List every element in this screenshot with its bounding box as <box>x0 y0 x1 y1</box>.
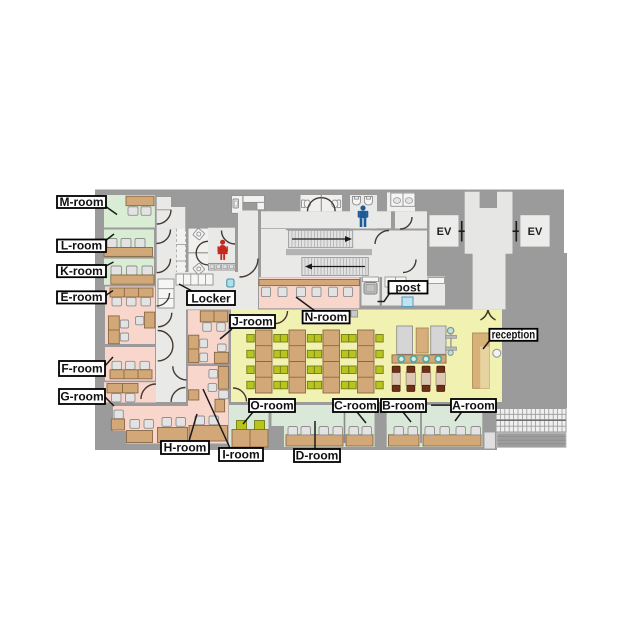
svg-text:A-room: A-room <box>452 399 495 413</box>
svg-text:J-room: J-room <box>232 315 273 329</box>
svg-text:M-room: M-room <box>60 195 104 209</box>
svg-text:B-room: B-room <box>382 399 425 413</box>
svg-text:K-room: K-room <box>60 264 103 278</box>
svg-text:EV: EV <box>528 226 543 238</box>
svg-text:E-room: E-room <box>61 290 103 304</box>
svg-text:C-room: C-room <box>334 399 377 413</box>
svg-text:reception: reception <box>492 327 536 341</box>
svg-text:Locker: Locker <box>191 291 231 305</box>
svg-text:O-room: O-room <box>250 399 293 413</box>
svg-text:H-room: H-room <box>164 441 207 455</box>
svg-text:EV: EV <box>437 226 452 238</box>
svg-text:F-room: F-room <box>61 362 102 376</box>
svg-text:post: post <box>395 280 420 294</box>
svg-text:G-room: G-room <box>60 390 103 404</box>
svg-text:D-room: D-room <box>296 449 339 463</box>
svg-text:N-room: N-room <box>305 310 348 324</box>
svg-text:I-room: I-room <box>222 448 259 462</box>
svg-text:L-room: L-room <box>61 239 102 253</box>
